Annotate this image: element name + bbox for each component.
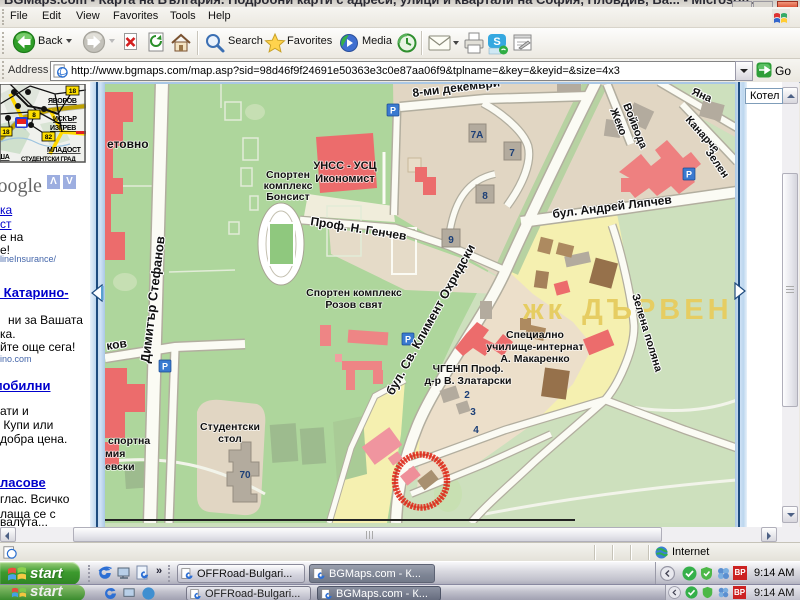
svg-text:3: 3: [470, 407, 476, 418]
svg-text:Розов свят: Розов свят: [325, 299, 382, 311]
svg-text:Икономист: Икономист: [315, 173, 375, 185]
svg-text:д-р В. Златарски: д-р В. Златарски: [425, 375, 512, 387]
svg-text:P: P: [390, 106, 396, 116]
svg-text:А. Макаренко: А. Макаренко: [500, 353, 569, 365]
svg-text:ИСКЪР: ИСКЪР: [53, 116, 77, 123]
svg-text:ША: ША: [0, 154, 10, 161]
svg-text:училище-интернат: училище-интернат: [486, 341, 583, 353]
svg-text:P: P: [686, 170, 692, 180]
svg-text:7А: 7А: [471, 130, 484, 141]
svg-text:Студентски: Студентски: [200, 421, 260, 433]
svg-text:УНСС - УСЦ: УНСС - УСЦ: [313, 160, 376, 172]
svg-text:стол: стол: [218, 433, 242, 445]
svg-text:ЧГЕНП Проф.: ЧГЕНП Проф.: [433, 363, 504, 375]
svg-text:82: 82: [45, 134, 53, 141]
svg-text:9: 9: [448, 235, 454, 246]
svg-text:8: 8: [32, 112, 36, 119]
svg-text:S: S: [493, 36, 500, 48]
svg-text:Бонсист: Бонсист: [266, 191, 310, 203]
svg-text:2: 2: [464, 390, 470, 401]
svg-text:70: 70: [239, 470, 251, 481]
svg-text:7: 7: [509, 148, 515, 159]
svg-text:ИЗГРЕВ: ИЗГРЕВ: [50, 125, 76, 132]
svg-text:мия: мия: [105, 448, 125, 460]
svg-text:спортна: спортна: [108, 435, 150, 447]
svg-text:ЯВОРОВ: ЯВОРОВ: [48, 98, 77, 105]
svg-text:МЛАДОСТ: МЛАДОСТ: [47, 147, 82, 154]
svg-text:8: 8: [482, 191, 488, 202]
svg-text:Спортен комплекс: Спортен комплекс: [306, 287, 402, 299]
svg-text:Специално: Специално: [506, 329, 564, 341]
svg-text:4: 4: [473, 425, 479, 436]
svg-text:етовно: етовно: [107, 137, 149, 151]
svg-text:жкДЪРВЕН: жкДЪРВЕН: [522, 294, 733, 326]
svg-text:P: P: [162, 362, 168, 372]
svg-text:евски: евски: [105, 461, 135, 473]
svg-text:18: 18: [2, 129, 10, 136]
svg-text:18: 18: [69, 88, 77, 95]
